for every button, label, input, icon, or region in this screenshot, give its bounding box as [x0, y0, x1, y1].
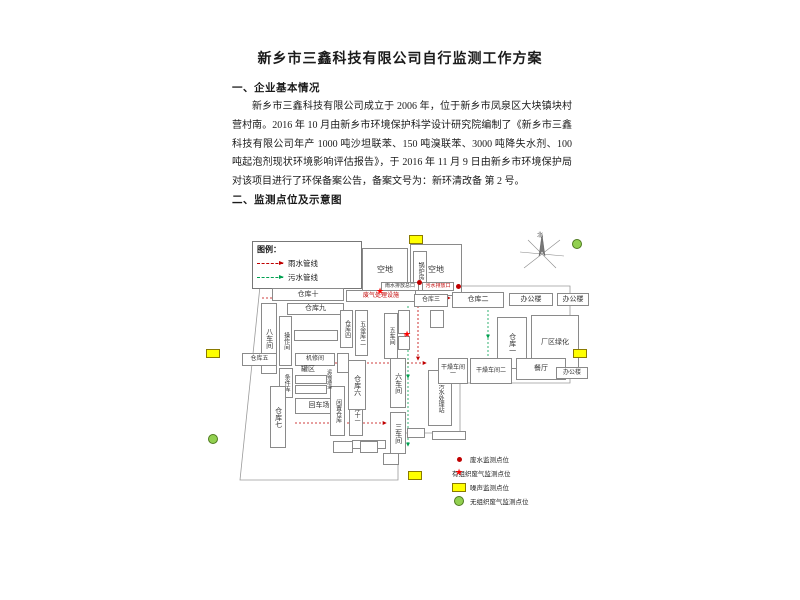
legend-row-organized-gas: ★ 有组织废气监测点位 — [452, 468, 592, 478]
legend-row-wastewater: 废水监测点位 — [452, 454, 592, 464]
wastewater-point-icon — [452, 457, 466, 462]
diagram-box-workshop-6: 六车间 — [390, 358, 406, 408]
site-plan-diagram: 图例： 雨水管线 污水管线 北 废水监测点位 ★ 有组织 — [200, 218, 600, 518]
pipeline-legend: 图例： 雨水管线 污水管线 — [252, 241, 362, 289]
diagram-box-warehouse-10: 仓库十 — [272, 288, 344, 301]
organized-gas-monitor-marker: ★ — [376, 287, 386, 297]
wastewater-monitor-marker — [417, 280, 422, 285]
section1-paragraph: 新乡市三鑫科技有限公司成立于 2006 年，位于新乡市凤泉区大块镇块村营村南。2… — [232, 98, 572, 192]
diagram-box-small-room-11 — [383, 453, 399, 465]
diagram-box-office-building-1: 办公楼 — [509, 293, 553, 306]
document-page: 新乡市三鑫科技有限公司自行监测工作方案 一、企业基本情况 新乡市三鑫科技有限公司… — [0, 0, 800, 600]
diagram-box-warehouse-7: 仓库七 — [270, 386, 286, 448]
noise-monitor-marker — [573, 349, 587, 358]
diagram-box-small-room-7 — [407, 428, 425, 438]
page-title: 新乡市三鑫科技有限公司自行监测工作方案 — [0, 48, 800, 68]
noise-monitor-marker — [206, 349, 220, 358]
legend-row-rain: 雨水管线 — [257, 258, 357, 269]
diagram-box-hardware-store-2: 五金库二 — [355, 310, 368, 356]
sewage-pipeline-icon — [257, 277, 283, 278]
organized-gas-point-icon: ★ — [452, 468, 466, 478]
noise-point-icon — [452, 483, 466, 492]
diagram-box-office-building-3: 办公楼 — [556, 367, 588, 379]
diagram-box-drying-workshop-1: 干燥车间一 — [438, 358, 468, 384]
wastewater-point-label: 废水监测点位 — [470, 454, 509, 464]
legend-row-sewage: 污水管线 — [257, 272, 357, 283]
wastewater-monitor-marker — [456, 284, 461, 289]
compass-north-label: 北 — [537, 231, 543, 239]
diagram-box-operation-room: 操作间 — [279, 316, 292, 366]
diagram-box-workshop-3: 三车间 — [390, 412, 406, 454]
fugitive-gas-monitor-marker — [208, 434, 218, 444]
compass-icon: 北 — [518, 228, 566, 274]
diagram-box-warehouse-2: 仓库二 — [452, 292, 504, 308]
diagram-box-small-room-1 — [294, 330, 338, 341]
diagram-box-warehouse-4: 仓库四 — [340, 310, 353, 348]
legend-row-noise: 噪声监测点位 — [452, 482, 592, 492]
diagram-box-rain-outlet-label: 雨水排放总口 — [381, 282, 419, 291]
noise-monitor-marker — [408, 471, 422, 480]
fugitive-gas-point-label: 无组织废气监测点位 — [470, 496, 529, 506]
diagram-box-tank-area-label: 罐区 — [295, 365, 321, 374]
diagram-box-tank-box-2 — [295, 385, 327, 394]
pipeline-legend-title: 图例： — [257, 244, 357, 255]
diagram-box-warehouse-6: 仓库六 — [348, 360, 366, 410]
diagram-box-office-building-2: 办公楼 — [557, 293, 589, 306]
section1-heading: 一、企业基本情况 — [232, 80, 320, 95]
fugitive-gas-point-icon — [452, 496, 466, 506]
diagram-box-tank-box-1 — [295, 375, 327, 384]
rain-pipeline-label: 雨水管线 — [288, 258, 318, 269]
noise-point-label: 噪声监测点位 — [470, 482, 509, 492]
diagram-box-warehouse-5: 仓库五 — [242, 353, 277, 366]
diagram-box-transport-passage: 运输通道 — [324, 356, 333, 402]
diagram-box-small-room-10 — [360, 441, 378, 453]
diagram-box-warehouse-9: 仓库九 — [287, 303, 344, 315]
diagram-box-small-room-9 — [333, 441, 353, 453]
diagram-box-small-room-8 — [432, 431, 466, 440]
section2-heading: 二、监测点位及示意图 — [232, 192, 342, 207]
diagram-box-drying-workshop-2: 干燥车间二 — [470, 358, 512, 384]
organized-gas-monitor-marker: ★ — [403, 330, 413, 340]
diagram-box-warehouse-3: 仓库三 — [414, 294, 448, 307]
fugitive-gas-monitor-marker — [572, 239, 582, 249]
legend-row-fugitive-gas: 无组织废气监测点位 — [452, 496, 592, 506]
diagram-box-sewage-outlet-label: 污水排放口 — [422, 282, 454, 291]
sewage-pipeline-label: 污水管线 — [288, 272, 318, 283]
rain-pipeline-icon — [257, 263, 283, 264]
noise-monitor-marker — [409, 235, 423, 244]
diagram-box-workshop-5: 五车间 — [384, 313, 398, 359]
diagram-box-small-room-6 — [430, 310, 444, 328]
monitoring-legend: 废水监测点位 ★ 有组织废气监测点位 噪声监测点位 无组织废气监测点位 — [452, 450, 592, 506]
